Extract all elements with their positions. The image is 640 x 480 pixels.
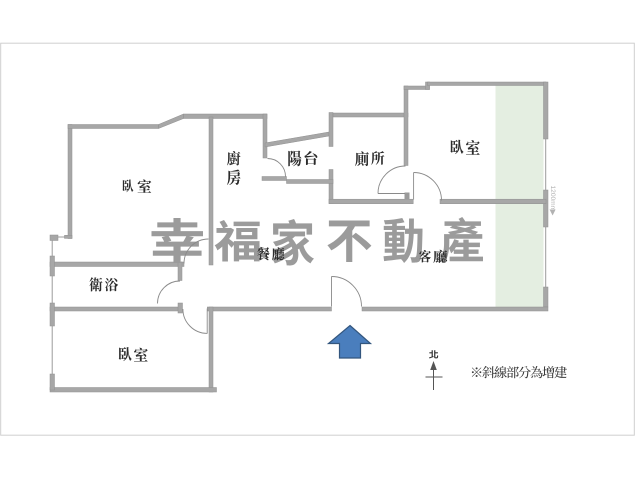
svg-text:1200mm: 1200mm [549,186,556,212]
